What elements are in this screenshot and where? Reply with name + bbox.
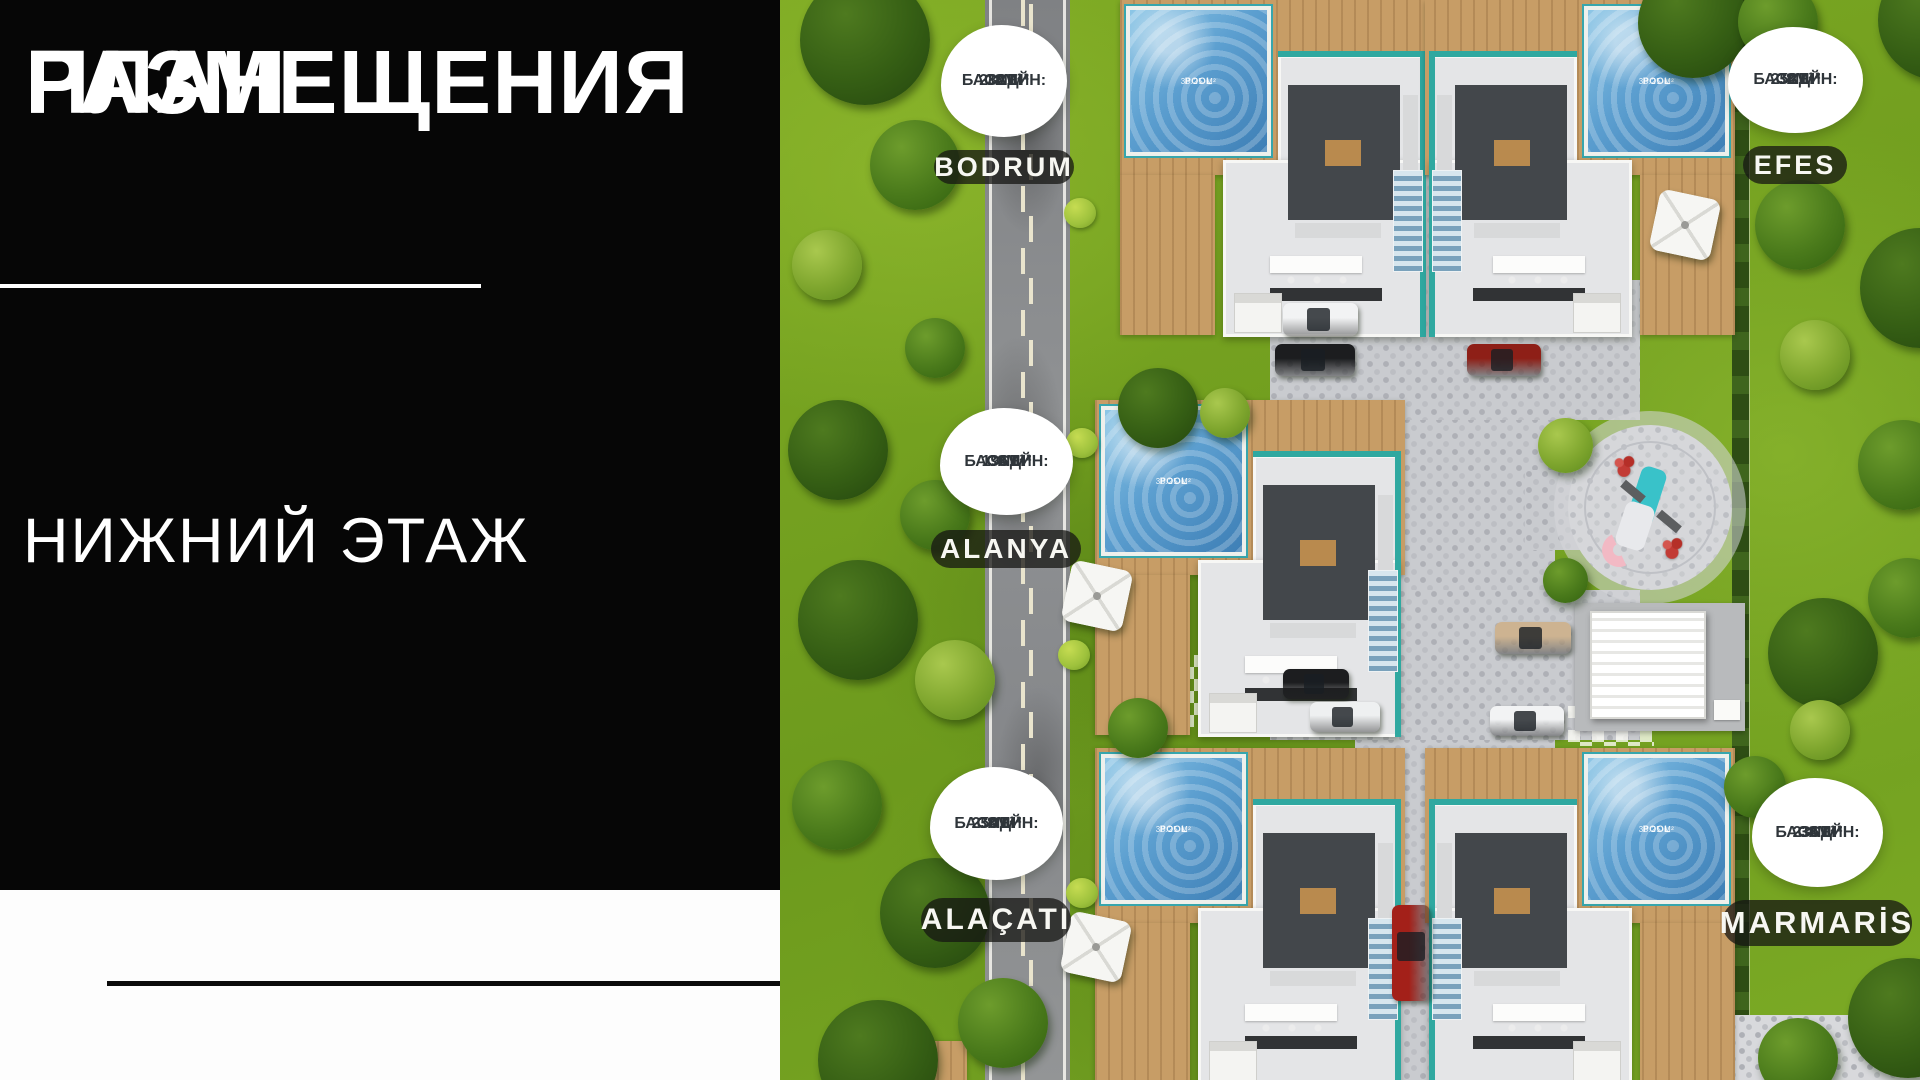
- tree: [1200, 388, 1250, 438]
- car: [1392, 905, 1430, 1001]
- left-panel: [0, 0, 780, 890]
- car: [1467, 344, 1541, 376]
- tree: [1755, 180, 1845, 270]
- tree: [1858, 420, 1920, 510]
- tree: [958, 978, 1048, 1068]
- car-windshield: [1519, 627, 1542, 649]
- car: [1283, 303, 1358, 336]
- car-windshield: [1397, 932, 1425, 961]
- car: [1495, 622, 1571, 654]
- villa-label-bodrum: BODRUM: [934, 150, 1074, 184]
- villa-label-efes: EFES: [1743, 146, 1847, 184]
- car-windshield: [1491, 349, 1513, 371]
- car: [1275, 344, 1355, 376]
- car: [1283, 669, 1349, 699]
- villa-label-alanya: ALANYA: [931, 530, 1081, 568]
- page-subtitle: НИЖНИЙ ЭТАЖ: [23, 505, 529, 577]
- car-windshield: [1332, 707, 1353, 727]
- villa-label-alacati: ALAÇATI: [921, 898, 1071, 942]
- car: [1310, 702, 1380, 732]
- tree: [788, 400, 888, 500]
- info-badge-alanya: САД: 196 М² БАССЕЙН: 38М²: [940, 408, 1073, 515]
- tree: [1118, 368, 1198, 448]
- car-windshield: [1304, 674, 1324, 694]
- tree: [1860, 228, 1920, 348]
- tree: [1768, 598, 1878, 708]
- tree: [1543, 558, 1588, 603]
- title-underline: [0, 284, 481, 288]
- tree: [798, 560, 918, 680]
- car: [1490, 706, 1564, 736]
- page-title-line2: РАЗМЕЩЕНИЯ: [25, 40, 690, 127]
- pool-area: 38М²: [1777, 68, 1813, 92]
- tree: [792, 760, 882, 850]
- site-plan-map: POOL 38.25 M² POOL 38.25 M²: [780, 0, 1920, 1080]
- bush: [1058, 640, 1090, 670]
- car-windshield: [1301, 349, 1325, 371]
- tree: [1758, 1018, 1838, 1080]
- tree: [1780, 320, 1850, 390]
- tree: [1868, 558, 1920, 638]
- tree: [792, 230, 862, 300]
- tree: [1848, 958, 1920, 1078]
- tree: [1108, 698, 1168, 758]
- villa-label-marmaris: MARMARİS: [1722, 900, 1912, 946]
- pool-area: 38М²: [1799, 821, 1835, 845]
- info-badge-bodrum: САД: 282 М² БАССЕЙН: 38М²: [941, 25, 1067, 137]
- car-windshield: [1514, 711, 1536, 731]
- tree: [905, 318, 965, 378]
- footer-divider-line: [107, 981, 783, 986]
- pool-area: 38М²: [988, 450, 1024, 474]
- tree: [800, 0, 930, 105]
- tree: [1790, 700, 1850, 760]
- tree: [915, 640, 995, 720]
- tree: [818, 1000, 938, 1080]
- info-badge-efes: САД: 252 М² БАССЕЙН: 38М²: [1728, 27, 1863, 133]
- bush: [1064, 198, 1096, 228]
- info-badge-marmaris: САД: 236 М² БАССЕЙН: 38М²: [1752, 778, 1883, 887]
- tree: [1538, 418, 1593, 473]
- tree: [1878, 0, 1920, 80]
- pool-area: 38М²: [986, 69, 1022, 93]
- info-badge-alacati: САД: 250 М² БАССЕЙН: 38М²: [930, 767, 1063, 880]
- slide: ПЛАН РАЗМЕЩЕНИЯ НИЖНИЙ ЭТАЖ: [0, 0, 1920, 1080]
- pool-area: 38М²: [978, 812, 1014, 836]
- car-windshield: [1307, 308, 1330, 331]
